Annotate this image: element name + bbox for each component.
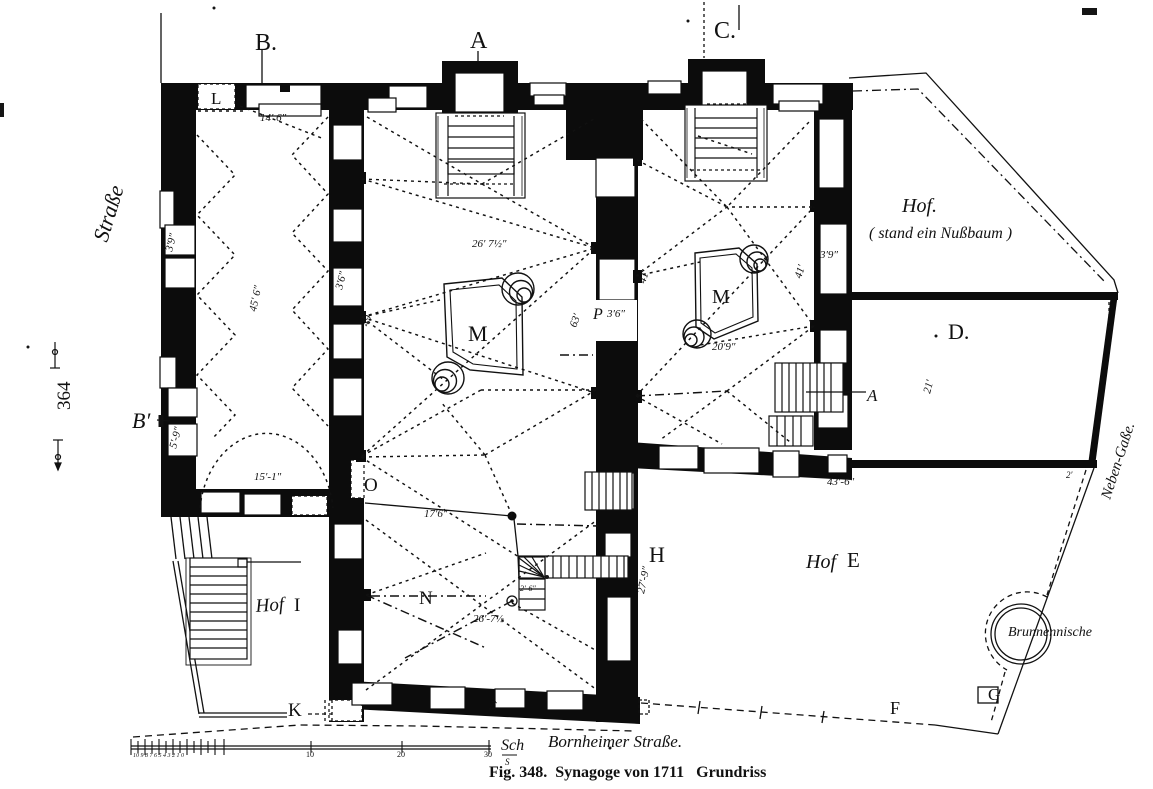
svg-text:K: K bbox=[288, 700, 302, 721]
svg-text:L: L bbox=[211, 89, 221, 108]
svg-text:N: N bbox=[419, 588, 433, 609]
svg-text:G: G bbox=[988, 685, 1000, 704]
svg-text:M: M bbox=[712, 286, 730, 308]
svg-text:Bornheimer Straße.: Bornheimer Straße. bbox=[548, 732, 682, 751]
svg-text:B.: B. bbox=[255, 30, 277, 56]
svg-text:D.: D. bbox=[948, 319, 969, 344]
svg-text:( stand ein Nußbaum ): ( stand ein Nußbaum ) bbox=[869, 225, 1012, 242]
svg-text:I: I bbox=[294, 595, 300, 616]
svg-text:H: H bbox=[649, 542, 665, 567]
svg-text:364: 364 bbox=[54, 381, 75, 410]
svg-text:Hof.: Hof. bbox=[901, 195, 937, 217]
svg-text:20: 20 bbox=[397, 750, 405, 759]
svg-text:Sch: Sch bbox=[501, 737, 524, 754]
svg-text:B′: B′ bbox=[132, 408, 151, 433]
svg-text:30: 30 bbox=[484, 750, 492, 759]
svg-text:10: 10 bbox=[306, 750, 314, 759]
svg-text:F: F bbox=[890, 698, 900, 718]
svg-text:O: O bbox=[364, 475, 378, 496]
svg-text:20′9″: 20′9″ bbox=[712, 341, 736, 353]
svg-text:15′-1″: 15′-1″ bbox=[254, 471, 282, 483]
svg-text:3′9″: 3′9″ bbox=[819, 249, 838, 261]
svg-text:2′: 2′ bbox=[1066, 470, 1074, 480]
svg-text:C.: C. bbox=[714, 18, 736, 44]
svg-text:Hof: Hof bbox=[254, 594, 288, 617]
svg-text:43′-6″: 43′-6″ bbox=[827, 476, 855, 488]
svg-text:Hof: Hof bbox=[805, 551, 838, 573]
svg-text:Fig. 348. Synagoge von 1711: Fig. 348. Synagoge von 1711 Grundriss bbox=[489, 764, 766, 781]
svg-text:P: P bbox=[592, 306, 603, 323]
svg-text:Brunnennische: Brunnennische bbox=[1008, 625, 1092, 640]
svg-text:10 9 8 7 6 5 4 3 2 1 0: 10 9 8 7 6 5 4 3 2 1 0 bbox=[133, 752, 184, 759]
svg-text:17′6″: 17′6″ bbox=[424, 508, 448, 520]
svg-text:26′-7½: 26′-7½ bbox=[473, 613, 504, 625]
svg-text:14′ 6″: 14′ 6″ bbox=[260, 112, 287, 124]
svg-text:26′ 7½″: 26′ 7½″ bbox=[472, 238, 507, 250]
svg-text:E: E bbox=[847, 548, 860, 572]
svg-text:M: M bbox=[468, 321, 488, 346]
svg-text:2′-6″: 2′-6″ bbox=[520, 584, 536, 593]
svg-text:A: A bbox=[470, 28, 488, 54]
svg-text:A: A bbox=[866, 386, 878, 405]
svg-text:3′6″: 3′6″ bbox=[606, 308, 625, 320]
